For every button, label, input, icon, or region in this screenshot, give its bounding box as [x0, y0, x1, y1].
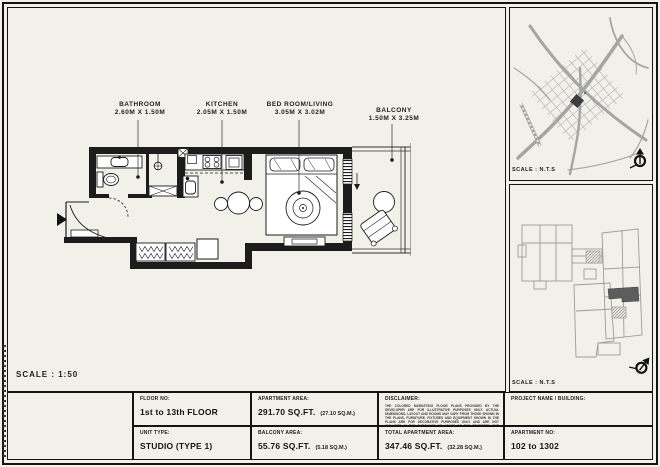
label-leader-lines: [136, 120, 394, 195]
apartment-area-value: 291.70 SQ.FT.: [258, 407, 315, 417]
kitchen-fixtures: [183, 154, 244, 197]
unit-type-cell: UNIT TYPE: STUDIO (TYPE 1): [133, 426, 251, 460]
label-bathroom: BATHROOM 2.60M X 1.50M: [115, 101, 166, 117]
apartment-area-label: APARTMENT AREA:: [258, 396, 373, 402]
total-area-value: 347.46 SQ.FT.: [385, 441, 442, 451]
project-name-cell: PROJECT NAME / BUILDING:: [504, 392, 653, 426]
bathroom-fixtures: [97, 149, 188, 197]
balcony-area-metric: (5.18 SQ.M.): [315, 445, 346, 451]
disclaimer-text: THE COLORED MARKETING FLOOR PLANS PROVID…: [385, 404, 499, 427]
floor-plan-sheet: BATHROOM 2.60M X 1.50M KITCHEN 2.05M X 1…: [0, 0, 660, 467]
room-name: BALCONY: [369, 107, 420, 115]
project-name-label: PROJECT NAME / BUILDING:: [511, 396, 648, 402]
highlighted-unit: [608, 287, 639, 302]
apartment-area-metric: (27.10 SQ.M.): [320, 411, 355, 417]
core-hatch: [586, 251, 600, 263]
total-area-metric: (32.28 SQ.M.): [447, 445, 482, 451]
main-scale-label: SCALE : 1:50: [16, 370, 78, 379]
core-hatch: [612, 307, 626, 318]
key-plan-map: [510, 185, 652, 391]
apartment-no-value: 102 to 1302: [511, 441, 648, 451]
wardrobe: [136, 239, 218, 261]
location-map: [510, 8, 652, 180]
balcony-furniture: [354, 173, 398, 247]
floor-no-value: 1st to 13th FLOOR: [140, 407, 246, 417]
room-dims: 2.60M X 1.50M: [115, 109, 166, 117]
north-arrow-icon: [630, 148, 645, 168]
margin-annotation-marks: [3, 345, 6, 458]
apartment-no-cell: APARTMENT NO: 102 to 1302: [504, 426, 653, 460]
room-name: KITCHEN: [197, 101, 248, 109]
tv-unit: [284, 237, 325, 246]
north-arrow-icon: [629, 351, 652, 376]
entry-door: [66, 198, 137, 242]
round-rug: [286, 191, 320, 225]
unit-type-value: STUDIO (TYPE 1): [140, 441, 246, 451]
railway: [521, 104, 540, 146]
floor-no-label: FLOOR NO:: [140, 396, 246, 402]
label-bedroom-living: BED ROOM/LIVING 3.05M X 3.02M: [267, 101, 334, 117]
disclaimer-cell: DISCLAIMER: THE COLORED MARKETING FLOOR …: [378, 392, 504, 426]
key-plan-scale-label: SCALE : N.T.S: [512, 380, 555, 386]
location-map-scale-label: SCALE : N.T.S: [512, 167, 555, 173]
floor-no-cell: FLOOR NO: 1st to 13th FLOOR: [133, 392, 251, 426]
total-area-cell: TOTAL APARTMENT AREA: 347.46 SQ.FT. (32.…: [378, 426, 504, 460]
main-roads: [514, 18, 648, 174]
room-name: BED ROOM/LIVING: [267, 101, 334, 109]
apartment-no-label: APARTMENT NO:: [511, 430, 648, 436]
total-area-label: TOTAL APARTMENT AREA:: [385, 430, 499, 436]
dining-set: [215, 192, 263, 214]
titleblock-empty-cell: [7, 392, 133, 460]
room-name: BATHROOM: [115, 101, 166, 109]
room-dims: 2.05M X 1.50M: [197, 109, 248, 117]
label-kitchen: KITCHEN 2.05M X 1.50M: [197, 101, 248, 117]
balcony-area-label: BALCONY AREA:: [258, 430, 373, 436]
apartment-area-cell: APARTMENT AREA: 291.70 SQ.FT. (27.10 SQ.…: [251, 392, 378, 426]
room-dims: 1.50M X 3.25M: [369, 115, 420, 123]
unit-type-label: UNIT TYPE:: [140, 430, 246, 436]
balcony-area-cell: BALCONY AREA: 55.76 SQ.FT. (5.18 SQ.M.): [251, 426, 378, 460]
room-dims: 3.05M X 3.02M: [267, 109, 334, 117]
balcony-area-value: 55.76 SQ.FT.: [258, 441, 310, 451]
disclaimer-label: DISCLAIMER:: [385, 396, 499, 402]
label-balcony: BALCONY 1.50M X 3.25M: [369, 107, 420, 123]
floor-plan-drawing: [7, 7, 506, 392]
